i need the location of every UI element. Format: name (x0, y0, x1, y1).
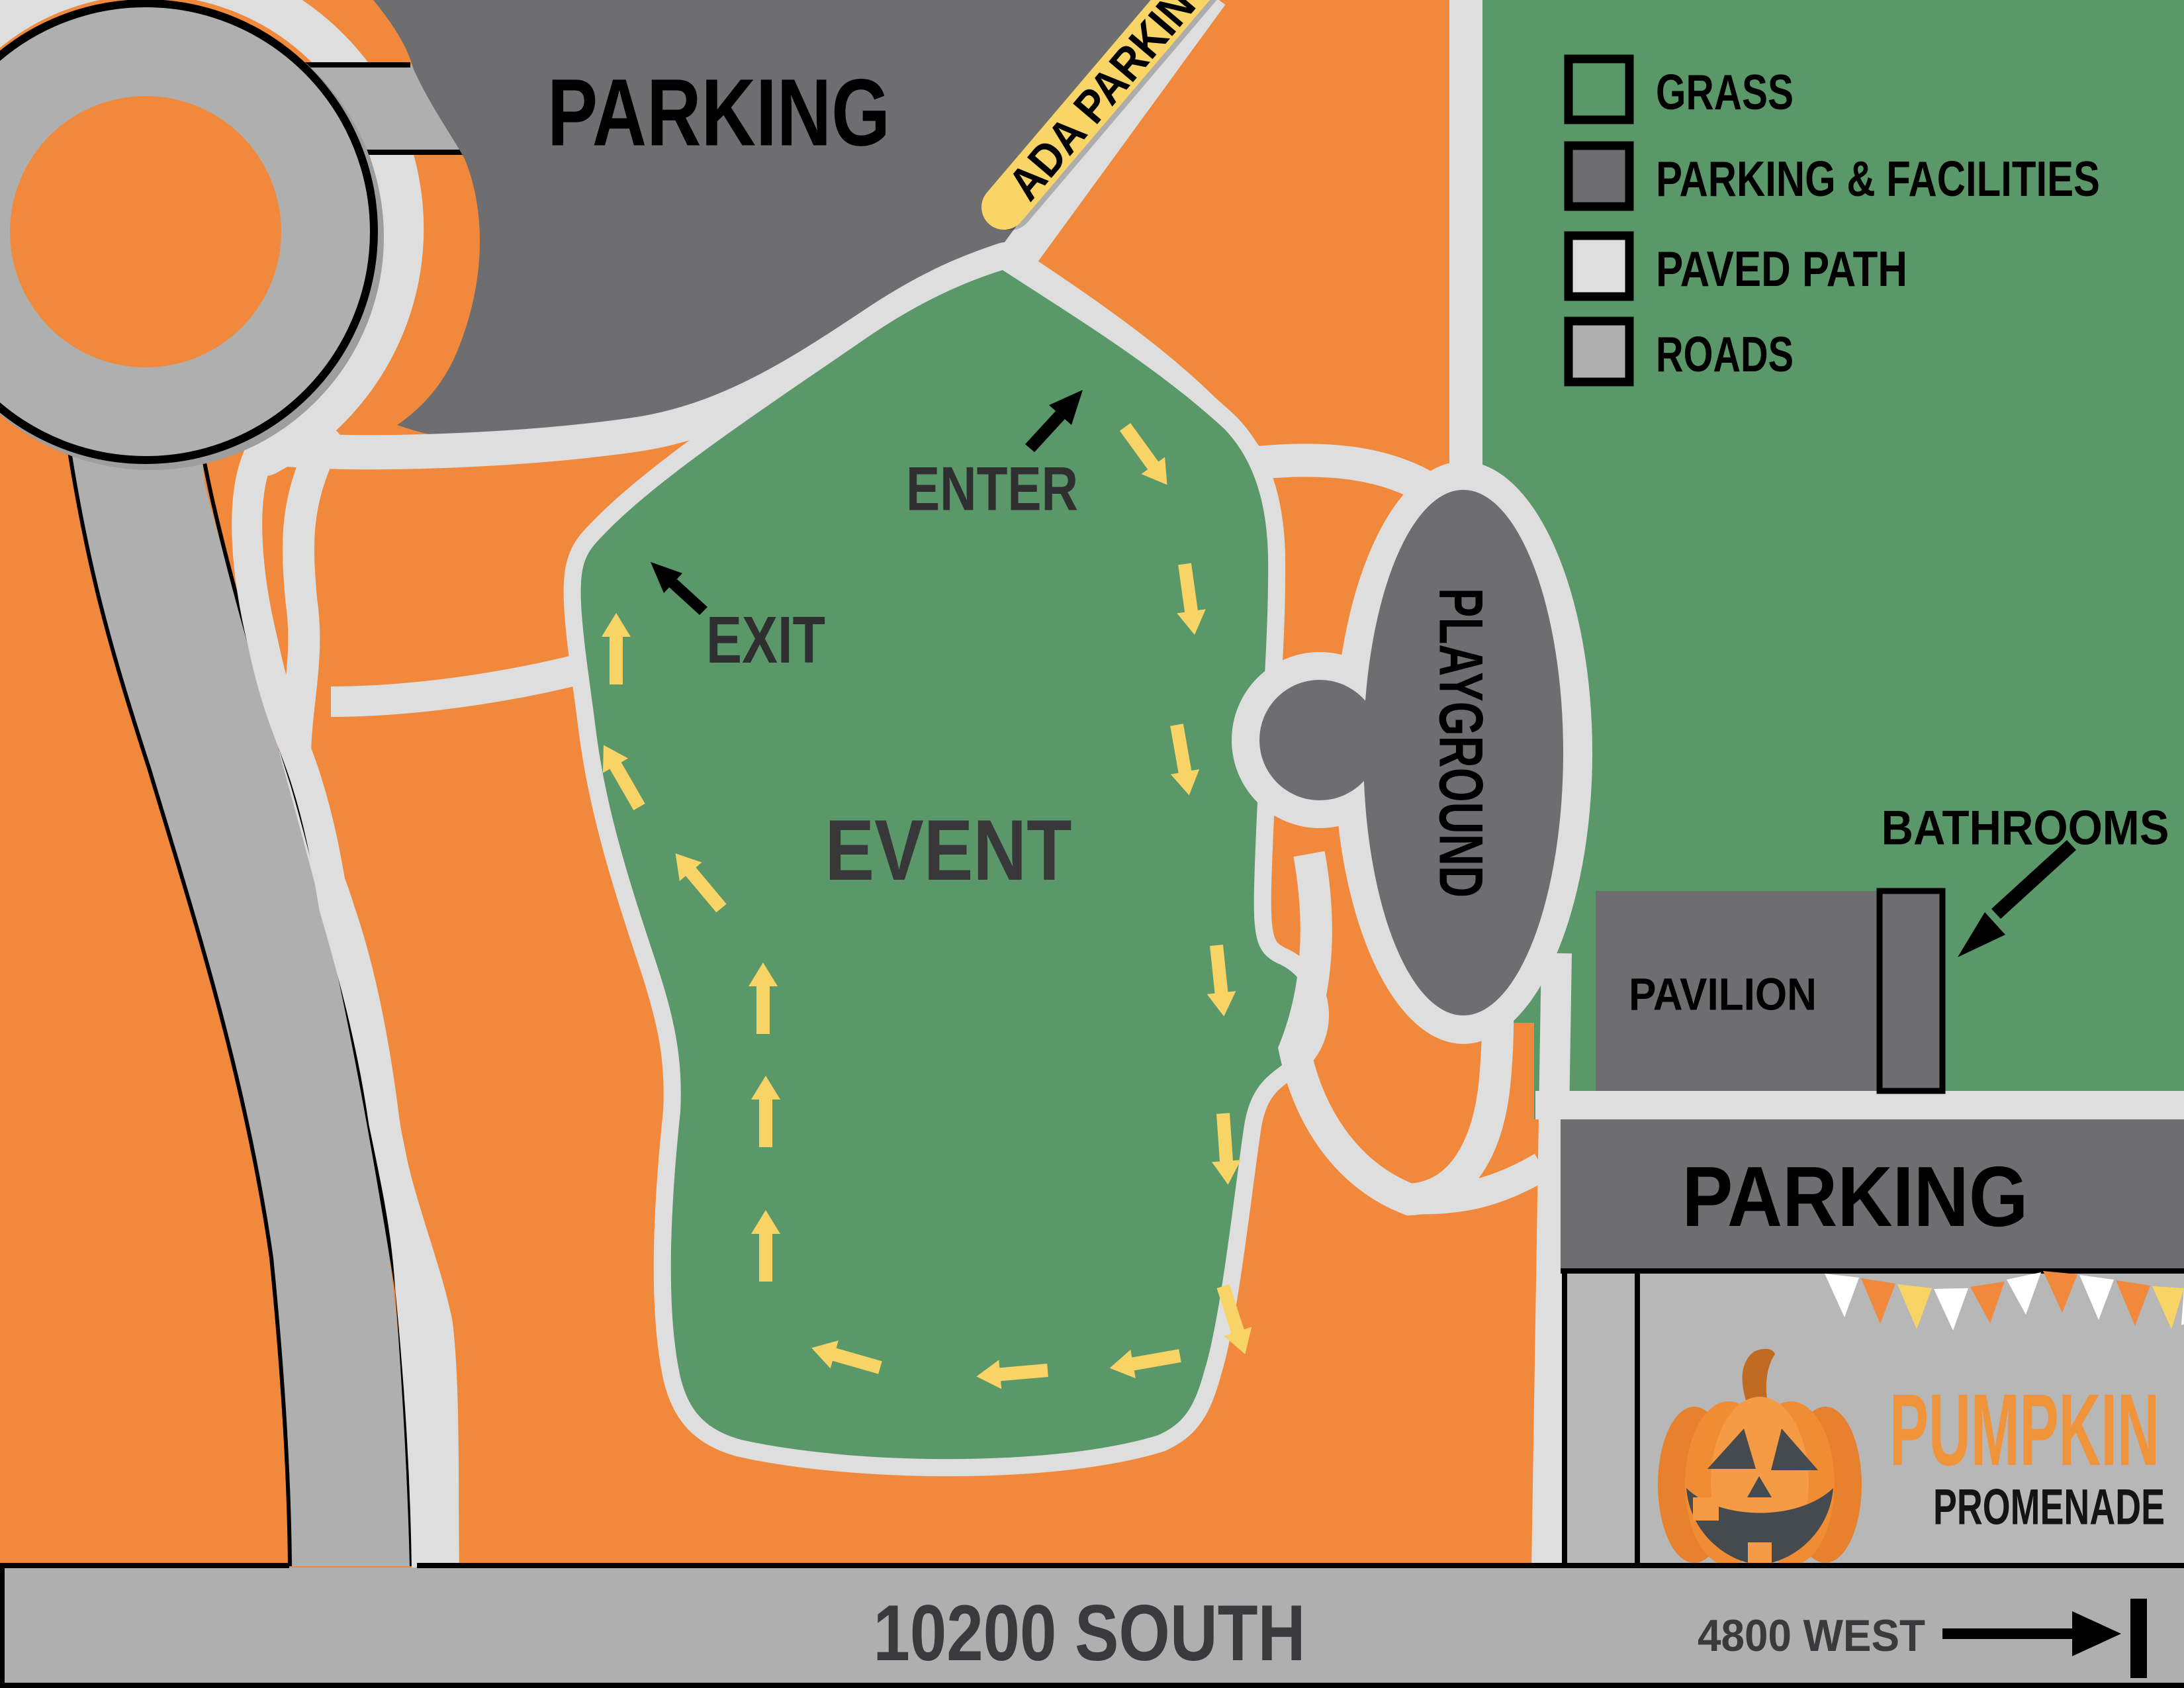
svg-text:PAVILION: PAVILION (1629, 969, 1817, 1020)
svg-text:4800 WEST: 4800 WEST (1698, 1611, 1925, 1661)
svg-text:PARKING & FACILITIES: PARKING & FACILITIES (1656, 151, 2100, 207)
svg-text:ROADS: ROADS (1656, 326, 1794, 382)
svg-text:ENTER: ENTER (906, 454, 1078, 524)
svg-text:PUMPKIN: PUMPKIN (1889, 1373, 2160, 1487)
svg-text:PARKING: PARKING (1682, 1149, 2028, 1244)
svg-text:10200 SOUTH: 10200 SOUTH (874, 1589, 1306, 1677)
svg-text:EVENT: EVENT (825, 802, 1072, 898)
svg-text:BATHROOMS: BATHROOMS (1882, 802, 2169, 855)
svg-text:PAVED PATH: PAVED PATH (1656, 241, 1907, 297)
svg-text:GRASS: GRASS (1656, 64, 1794, 120)
svg-text:PROMENADE: PROMENADE (1933, 1479, 2165, 1536)
svg-text:PLAYGROUND: PLAYGROUND (1427, 588, 1496, 898)
svg-text:EXIT: EXIT (706, 603, 825, 677)
svg-text:PARKING: PARKING (547, 60, 890, 166)
